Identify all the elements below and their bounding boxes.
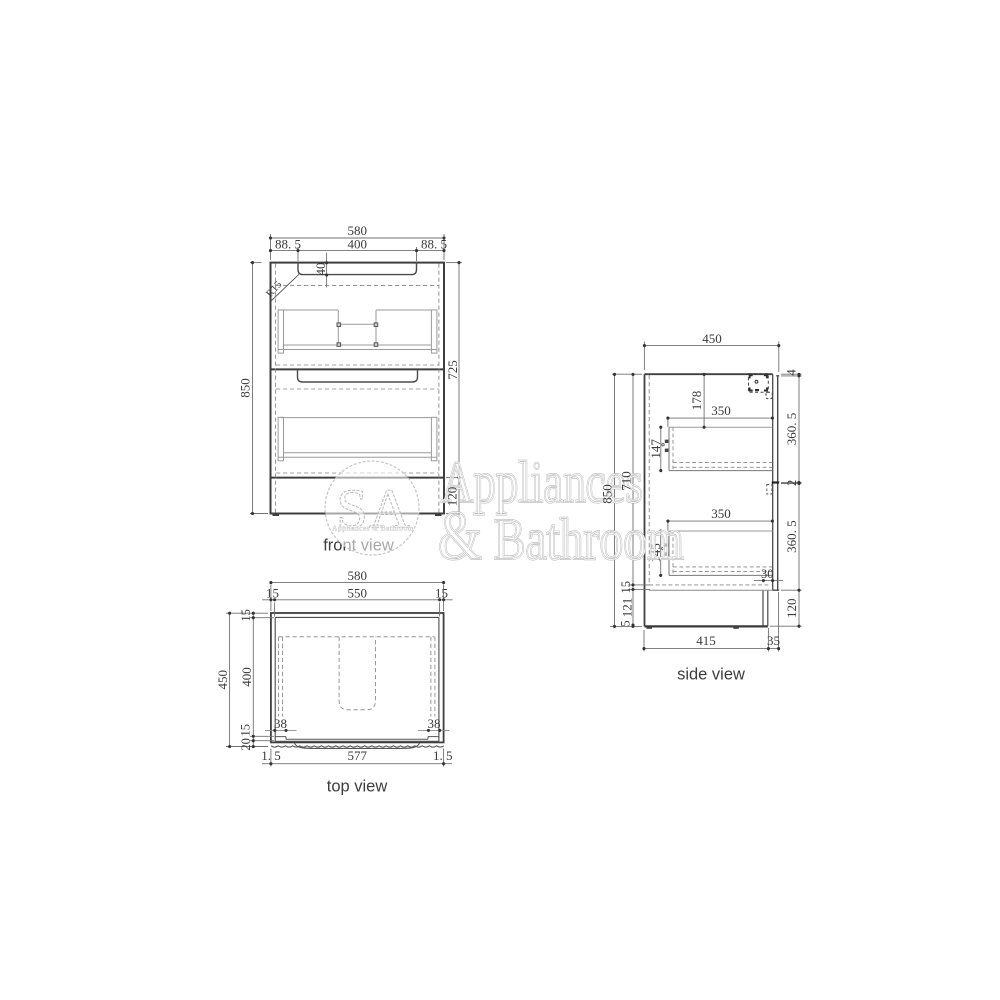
svg-text:20: 20 [239, 738, 253, 751]
svg-text:725: 725 [445, 360, 460, 380]
svg-text:580: 580 [347, 568, 367, 583]
svg-text:88. 5: 88. 5 [275, 236, 301, 251]
svg-text:120: 120 [445, 487, 460, 507]
svg-text:121: 121 [620, 598, 635, 618]
svg-text:350: 350 [711, 403, 731, 418]
svg-text:30: 30 [761, 567, 774, 581]
svg-text:4: 4 [785, 369, 799, 376]
svg-text:1. 5: 1. 5 [433, 748, 453, 763]
svg-text:400: 400 [347, 236, 367, 251]
svg-text:550: 550 [347, 585, 367, 600]
svg-text:top view: top view [327, 778, 388, 796]
svg-text:1. 5: 1. 5 [261, 748, 281, 763]
svg-text:15: 15 [435, 585, 448, 600]
svg-text:side view: side view [677, 666, 745, 684]
svg-text:15: 15 [238, 724, 252, 737]
svg-text:710: 710 [619, 471, 634, 491]
svg-text:850: 850 [238, 378, 253, 398]
svg-text:15: 15 [619, 581, 633, 594]
svg-text:5: 5 [619, 620, 633, 626]
svg-text:88. 5: 88. 5 [421, 236, 447, 251]
svg-text:350: 350 [711, 506, 731, 521]
svg-text:450: 450 [702, 331, 722, 346]
svg-text:850: 850 [600, 484, 615, 504]
svg-text:35: 35 [767, 633, 780, 648]
svg-text:178: 178 [689, 391, 704, 411]
svg-text:40: 40 [313, 263, 328, 276]
svg-text:360. 5: 360. 5 [784, 520, 799, 553]
svg-text:147: 147 [648, 439, 663, 459]
svg-text:15: 15 [239, 609, 253, 622]
svg-text:15: 15 [266, 585, 279, 600]
svg-text:Appliances & Bathroom: Appliances & Bathroom [332, 524, 414, 533]
svg-text:577: 577 [347, 748, 367, 763]
svg-text:450: 450 [215, 670, 230, 690]
svg-text:360. 5: 360. 5 [784, 413, 799, 446]
svg-text:415: 415 [696, 633, 716, 648]
svg-text:2: 2 [785, 480, 799, 486]
svg-text:38: 38 [428, 716, 441, 731]
svg-text:& Bathroom: & Bathroom [438, 498, 684, 575]
svg-text:120: 120 [784, 598, 799, 618]
svg-text:38: 38 [274, 716, 287, 731]
svg-text:400: 400 [239, 667, 254, 687]
